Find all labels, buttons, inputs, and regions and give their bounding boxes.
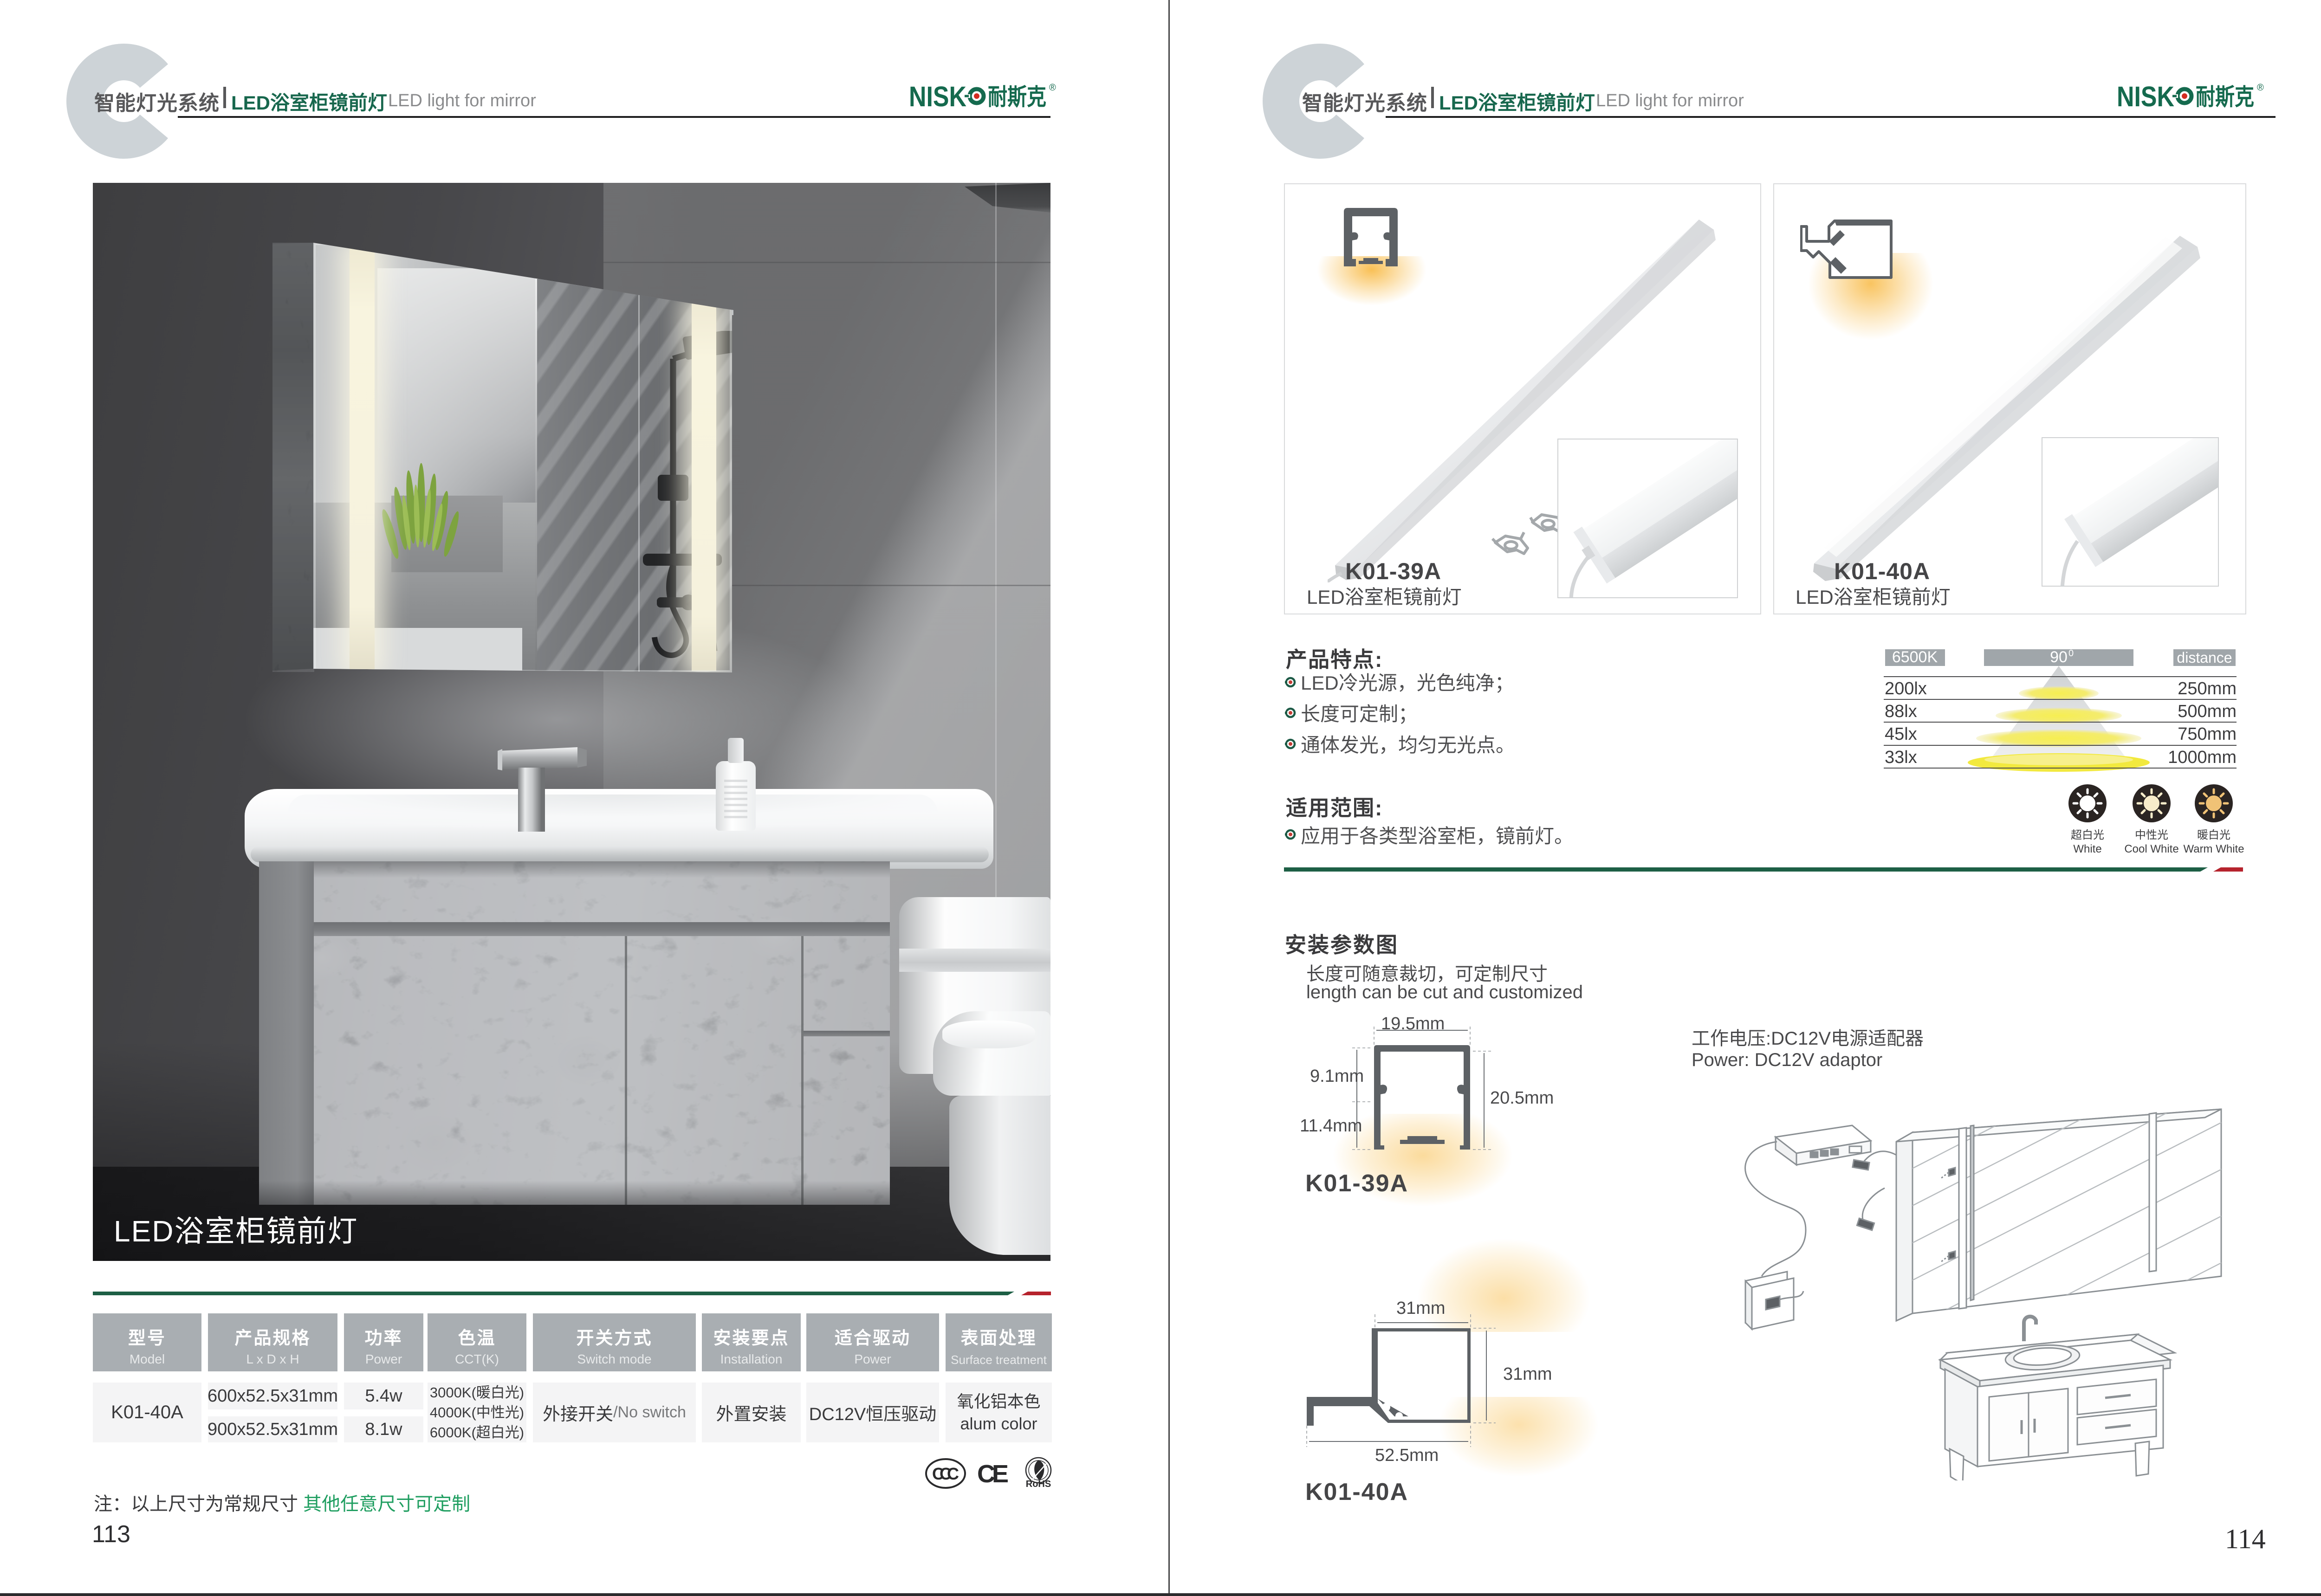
svg-text:®: ® (1049, 83, 1056, 93)
svg-text:®: ® (2257, 83, 2264, 93)
svg-text:200lx: 200lx (1885, 679, 1927, 698)
svg-text:超白光: 超白光 (2071, 829, 2104, 841)
svg-text:88lx: 88lx (1885, 702, 1917, 721)
svg-text:90: 90 (2050, 648, 2068, 666)
svg-text:NISK: NISK (909, 81, 966, 112)
svg-text:耐斯克: 耐斯克 (2196, 84, 2254, 110)
svg-text:NISK: NISK (2117, 81, 2174, 112)
svg-text:Warm White: Warm White (2183, 843, 2244, 855)
svg-text:中性光: 中性光 (2135, 829, 2168, 841)
svg-text:暖白光: 暖白光 (2197, 829, 2230, 841)
svg-text:CCC: CCC (932, 1464, 959, 1483)
svg-text:250mm: 250mm (2178, 679, 2237, 698)
svg-text:500mm: 500mm (2178, 702, 2237, 721)
svg-text:CE: CE (977, 1461, 1009, 1486)
svg-text:750mm: 750mm (2178, 724, 2237, 744)
svg-text:White: White (2073, 843, 2101, 855)
svg-text:33lx: 33lx (1885, 748, 1917, 767)
svg-text:RoHS: RoHS (1026, 1479, 1051, 1489)
svg-text:耐斯克: 耐斯克 (988, 84, 1046, 110)
svg-text:Cool White: Cool White (2124, 843, 2178, 855)
svg-text:0: 0 (2068, 648, 2074, 659)
svg-text:1000mm: 1000mm (2168, 748, 2237, 767)
svg-text:6500K: 6500K (1892, 648, 1938, 666)
svg-text:distance: distance (2177, 649, 2232, 666)
svg-text:45lx: 45lx (1885, 724, 1917, 744)
